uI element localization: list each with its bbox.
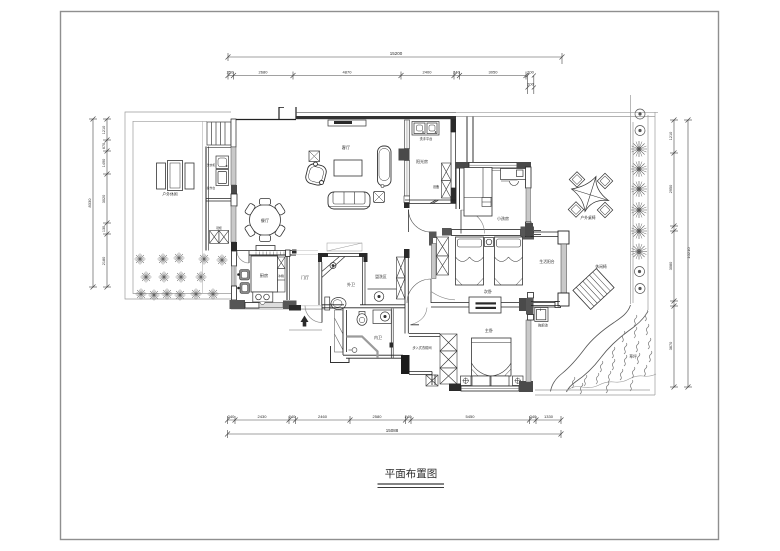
svg-text:草坪: 草坪 <box>629 354 637 359</box>
svg-text:平面布置图: 平面布置图 <box>385 468 438 480</box>
svg-text:次卧: 次卧 <box>484 288 492 295</box>
svg-text:670: 670 <box>102 143 106 149</box>
svg-text:阳光房: 阳光房 <box>416 158 428 164</box>
svg-text:5450: 5450 <box>466 414 476 419</box>
svg-text:240: 240 <box>453 70 460 75</box>
svg-text:鞋柜: 鞋柜 <box>216 226 222 230</box>
svg-text:3080: 3080 <box>669 262 673 270</box>
svg-text:户外桌椅: 户外桌椅 <box>580 215 595 220</box>
svg-text:户外休闲: 户外休闲 <box>162 192 177 197</box>
svg-text:操作台: 操作台 <box>207 186 216 190</box>
svg-text:2400: 2400 <box>423 70 433 75</box>
svg-text:2180: 2180 <box>102 257 106 265</box>
svg-text:盥洗区: 盥洗区 <box>375 274 387 279</box>
svg-text:200: 200 <box>527 70 534 75</box>
svg-text:4870: 4870 <box>343 70 353 75</box>
svg-text:厨房: 厨房 <box>260 272 268 279</box>
svg-text:冰箱: 冰箱 <box>278 273 284 278</box>
svg-text:240: 240 <box>530 414 537 419</box>
svg-text:门厅: 门厅 <box>301 274 309 280</box>
svg-text:10210: 10210 <box>686 247 691 259</box>
svg-text:外卫: 外卫 <box>347 281 355 287</box>
svg-text:3050: 3050 <box>489 70 499 75</box>
svg-text:主卧: 主卧 <box>485 327 493 334</box>
svg-text:餐厅: 餐厅 <box>261 217 269 224</box>
svg-text:1210: 1210 <box>669 132 673 140</box>
svg-text:洗衣机: 洗衣机 <box>207 163 216 167</box>
svg-text:2430: 2430 <box>258 414 268 419</box>
svg-text:休闲椅: 休闲椅 <box>595 264 607 269</box>
svg-text:240: 240 <box>228 414 235 419</box>
svg-text:拖把池: 拖把池 <box>538 323 548 328</box>
svg-text:8330: 8330 <box>87 198 92 208</box>
svg-text:15200: 15200 <box>390 51 403 56</box>
svg-text:客厅: 客厅 <box>342 144 350 151</box>
svg-text:200: 200 <box>527 82 534 87</box>
svg-text:240: 240 <box>405 414 412 419</box>
svg-text:步入式衣帽间: 步入式衣帽间 <box>412 345 431 350</box>
svg-text:15088: 15088 <box>386 428 399 433</box>
svg-text:2950: 2950 <box>669 185 673 193</box>
svg-text:3670: 3670 <box>669 342 673 350</box>
svg-text:2580: 2580 <box>373 414 383 419</box>
svg-text:1490: 1490 <box>102 159 106 167</box>
svg-text:1330: 1330 <box>544 414 554 419</box>
svg-text:250: 250 <box>227 70 234 75</box>
svg-text:设备: 设备 <box>433 184 440 189</box>
svg-text:1210: 1210 <box>102 126 106 134</box>
svg-text:内卫: 内卫 <box>374 334 382 340</box>
svg-text:2460: 2460 <box>318 414 328 419</box>
svg-text:240: 240 <box>289 414 296 419</box>
svg-text:3020: 3020 <box>102 195 106 203</box>
svg-text:小孩房: 小孩房 <box>497 215 509 221</box>
svg-text:洗手平台: 洗手平台 <box>420 136 433 141</box>
svg-text:2680: 2680 <box>259 70 269 75</box>
svg-text:生活阳台: 生活阳台 <box>539 259 554 264</box>
svg-text:130: 130 <box>102 226 106 232</box>
